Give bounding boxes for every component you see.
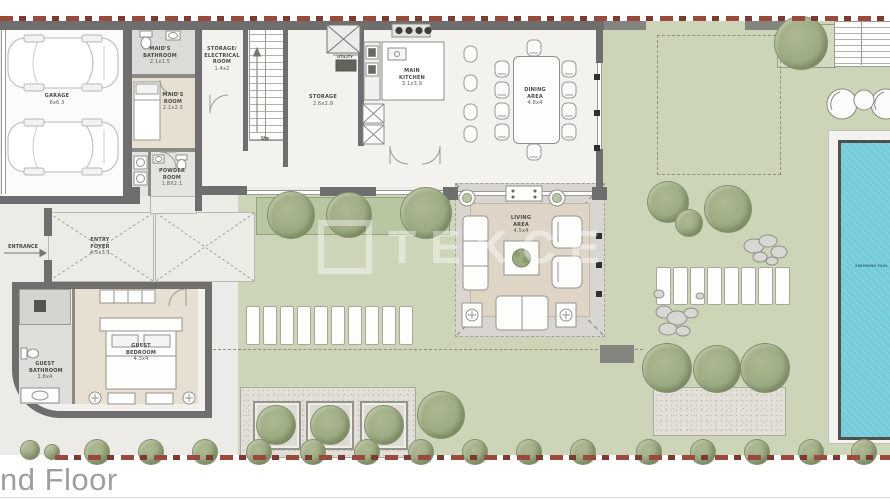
stepping-stone [707,267,722,305]
wall-east-lower [596,149,603,188]
stepping-stone [263,306,277,345]
pool-label: SWIMMING POOL [855,264,889,268]
bush-icon [300,439,326,465]
wall-north [0,21,604,30]
column [596,291,602,297]
bush-icon [798,439,824,465]
floor-plan: SWIMMING POOL Up [0,0,890,500]
tree-icon [417,391,465,439]
wall-south-seg1 [195,186,247,195]
room-name: STORAGE/ ELECTRICAL ROOM [204,46,240,66]
tree-icon [693,345,741,393]
bush-icon [636,439,662,465]
dashed-path [213,349,643,350]
wall-garage-south [0,196,132,204]
stepping-stone [724,267,739,305]
outdoor-stairs [834,21,890,67]
room-label-main-kitchen: MAIN KITCHEN 3.1x3.9 [388,68,436,88]
swimming-pool [838,140,890,440]
room-dims: 2.1x2.5 [152,105,194,112]
tree-icon [267,191,315,239]
pillar [592,187,607,200]
room-dims: 3.1x3.9 [388,81,436,88]
bush-icon [851,439,877,465]
stepping-stone [365,306,379,345]
room-label-living-area: LIVING AREA 4.5x4 [495,215,547,235]
tree-icon [642,343,692,393]
room-dims: 4.5x3.1 [75,250,125,257]
tree-icon [675,209,703,237]
room-dims: 2.1x1.5 [131,59,189,66]
boundary-wall-segment [604,21,646,30]
room-label-storage-electrical: STORAGE/ ELECTRICAL ROOM 1.4x2 [200,46,244,72]
stepping-stone [382,306,396,345]
floor-title: nd Floor [0,462,118,498]
bush-icon [192,439,218,465]
stepping-stone [246,306,260,345]
room-name: LIVING AREA [508,215,534,228]
stepping-stone [314,306,328,345]
bush-icon [690,439,716,465]
boundary-line-top [0,16,890,21]
stepping-stone [348,306,362,345]
wall-stair-west [243,21,248,151]
bush-icon [354,439,380,465]
room-dims: 1.8x4 [22,374,68,381]
column [594,74,600,80]
room-dims: 1.8X2.1 [150,181,194,188]
wall-stub [132,187,140,204]
boundary-line-bottom [55,455,890,460]
room-label-utility: UTILITY [332,54,358,58]
stepping-stone [399,306,413,345]
stepping-stone [673,267,688,305]
room-name: ENTRY FOYER [87,237,113,250]
partition [132,148,195,152]
porch-wall-2 [44,260,52,286]
room-label-entry-foyer: ENTRY FOYER 4.5x3.1 [75,237,125,257]
garage-door-line [1,30,6,194]
room-name: POWDER ROOM [158,168,186,181]
room-dims: 4.5x4 [495,228,547,235]
tree-icon [704,185,752,233]
x-pattern-icon [156,213,254,281]
room-name: MAID'S BATHROOM [143,46,177,59]
room-dims: 4.3x4 [115,356,167,363]
tree-icon [740,343,790,393]
bush-icon [570,439,596,465]
room-label-guest-bedroom: GUEST BEDROOM 4.3x4 [115,343,167,363]
room-name: MAID'S ROOM [160,92,186,105]
room-name: GUEST BEDROOM [125,343,157,356]
bush-icon [462,439,488,465]
bush-icon [516,439,542,465]
hall-tile [155,212,255,282]
tree-icon [326,192,372,238]
stepping-stone [775,267,790,305]
stepping-stone [297,306,311,345]
divider-line [0,497,890,498]
stair-divider [265,27,266,139]
stepping-stone [656,267,671,305]
room-name: MAIN KITCHEN [397,68,427,81]
room-dims: 4.8x4 [512,100,558,107]
sliding-door [458,191,592,196]
garden-dashed-plot [657,35,781,175]
partition [132,74,195,78]
tree-icon [400,187,452,239]
room-dims: 2.6x2.9 [295,101,351,108]
stepping-stone [758,267,773,305]
bush-icon [138,439,164,465]
stairs-up-label: Up [250,136,280,143]
room-label-maids-bathroom: MAID'S BATHROOM 2.1x1.5 [131,46,189,66]
room-label-garage: GARAGE 6x6.3 [22,93,92,106]
column [596,262,602,268]
stepping-stone [331,306,345,345]
stepping-stone [280,306,294,345]
partition [72,289,75,404]
room-label-storage: STORAGE 2.6x2.9 [295,94,351,107]
bush-icon [20,440,40,460]
shower-closet [19,289,71,325]
bush-icon [744,439,770,465]
garden-wall-segment [600,345,634,363]
room-dims: 1.4x2 [200,66,244,73]
stepping-stone [690,267,705,305]
room-name: GUEST BATHROOM [29,361,61,374]
porch-wall-1 [44,208,52,236]
column [594,145,600,151]
room-label-powder-room: POWDER ROOM 1.8X2.1 [150,168,194,188]
room-name: DINING AREA [522,87,548,100]
wall-kitchen-west [358,21,364,146]
entrance-label: ENTRANCE [8,244,38,250]
bush-icon [408,439,434,465]
garage-floor [3,30,123,196]
stair-divider [861,21,862,65]
bush-icon [246,439,272,465]
column [594,110,600,116]
wall-east-upper [596,21,603,63]
indoor-stairs [249,27,284,141]
room-label-maids-room: MAID'S ROOM 2.1x2.5 [152,92,194,112]
maids-room-floor [132,78,195,148]
wall-stair-east [283,21,288,167]
gravel-patio-right [653,387,786,436]
room-dims: 6x6.3 [22,100,92,107]
room-label-guest-bathroom: GUEST BATHROOM 1.8x4 [22,361,68,381]
corridor-tile [150,196,197,214]
room-label-dining-area: DINING AREA 4.8x4 [512,87,558,107]
tree-icon [774,16,828,70]
column [596,233,602,239]
room-name: UTILITY [332,54,358,58]
stepping-stone [741,267,756,305]
